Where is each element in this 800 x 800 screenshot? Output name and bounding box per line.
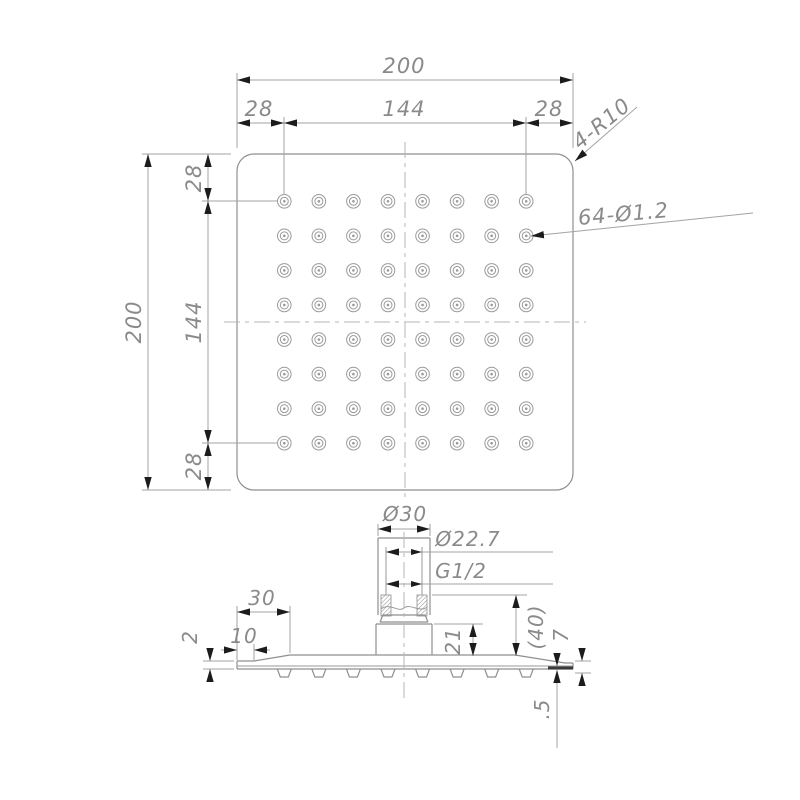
nozzle-hole-center xyxy=(456,338,459,341)
nozzle-hole-center xyxy=(318,200,321,203)
plate-top-surface xyxy=(237,655,573,663)
nozzle-hole-center xyxy=(490,442,493,445)
nozzle-hole-center xyxy=(352,442,355,445)
nozzle-hole-center xyxy=(525,269,528,272)
nozzle-hole-center xyxy=(490,407,493,410)
nozzle xyxy=(312,669,326,677)
nozzle-hole-center xyxy=(283,269,286,272)
nozzle-hole-center xyxy=(283,442,286,445)
nozzle-hole-center xyxy=(421,373,424,376)
nozzle-hole-center xyxy=(525,407,528,410)
plate-profile xyxy=(237,655,573,677)
pipe-od-label: Ø30 xyxy=(382,502,427,526)
holes-label: 64-Ø1.2 xyxy=(577,198,670,230)
nozzle-hole-center xyxy=(525,373,528,376)
v-seg-mid-label: 144 xyxy=(182,300,206,343)
nozzle-hole-center xyxy=(421,235,424,238)
top-view-extension-lines xyxy=(142,73,573,490)
h-seg-mid-label: 144 xyxy=(382,97,425,121)
dimension-thread-diameter: Ø22.7 xyxy=(386,527,553,555)
nozzle-hole-center xyxy=(387,373,390,376)
nozzle-hole-center xyxy=(456,407,459,410)
nozzle-hole-center xyxy=(490,200,493,203)
nozzle-hole-center xyxy=(421,200,424,203)
nozzle-hole-center xyxy=(318,407,321,410)
nozzle-hole-center xyxy=(352,338,355,341)
overall-width-label: 200 xyxy=(382,54,425,78)
nozzle-hole-center xyxy=(490,304,493,307)
top-view: 200 28 144 28 200 28 144 28 4-R10 xyxy=(122,54,753,502)
nozzle-hole-center xyxy=(352,304,355,307)
thread-hatch-right xyxy=(417,595,427,616)
nozzle-hole-center xyxy=(283,373,286,376)
nozzle-hole-center xyxy=(387,338,390,341)
dimension-pipe-length: (40) xyxy=(516,595,548,656)
nozzle-hole-center xyxy=(387,442,390,445)
nozzle-hole-center xyxy=(421,407,424,410)
nozzle-hole-center xyxy=(387,235,390,238)
thread-diameter-label: Ø22.7 xyxy=(434,527,500,551)
nozzle-hole-center xyxy=(525,235,528,238)
nozzle-hole-center xyxy=(421,442,424,445)
shower-head-technical-drawing: 200 28 144 28 200 28 144 28 4-R10 xyxy=(0,0,800,800)
nozzle-hole-center xyxy=(456,235,459,238)
nozzle xyxy=(450,669,464,677)
dimension-overall-width: 200 xyxy=(237,54,573,80)
thread-hatch-left xyxy=(381,595,391,616)
nozzle-hole-center xyxy=(525,304,528,307)
block-height-label: 21 xyxy=(441,627,465,654)
nozzle-hole-center xyxy=(352,407,355,410)
nozzle-hole-center xyxy=(421,269,424,272)
edge-flat-label: 10 xyxy=(230,624,257,648)
nozzle-hole-center xyxy=(352,269,355,272)
callout-corner-radius: 4-R10 xyxy=(568,93,637,161)
nozzle-hole-center xyxy=(318,373,321,376)
v-seg-bottom-label: 28 xyxy=(182,452,206,481)
nozzle-hole-center xyxy=(283,235,286,238)
edge-thickness-label: 2 xyxy=(178,630,202,644)
v-seg-top-label: 28 xyxy=(182,164,206,193)
nozzle-hole-center xyxy=(490,269,493,272)
nozzle-hole-center xyxy=(352,373,355,376)
nozzle-hole-center xyxy=(456,304,459,307)
dimension-edge-thickness: 2 xyxy=(178,630,210,680)
nozzle-hole-center xyxy=(318,442,321,445)
nozzle-hole-center xyxy=(283,407,286,410)
nozzle-hole-center xyxy=(421,338,424,341)
h-seg-left-label: 28 xyxy=(245,97,274,121)
dimension-hole-margins-vertical: 28 144 28 xyxy=(182,154,208,490)
nozzle-hole-center xyxy=(525,338,528,341)
nozzle-hole-center xyxy=(387,200,390,203)
corner-radius-label: 4-R10 xyxy=(568,93,635,154)
dimension-edge-flat: 10 xyxy=(221,624,270,650)
nozzle-hole-center xyxy=(490,373,493,376)
nozzle xyxy=(346,669,360,677)
nozzle-hole-center xyxy=(352,235,355,238)
overall-height-label: 200 xyxy=(122,300,146,343)
nozzle-hole-center xyxy=(490,235,493,238)
rim-height-label: 7 xyxy=(549,628,573,642)
nozzle xyxy=(381,669,395,677)
dimension-thread-spec: G1/2 xyxy=(386,559,553,587)
dimension-hole-margins-horizontal: 28 144 28 xyxy=(237,97,573,123)
nozzle-hole-center xyxy=(456,269,459,272)
side-view: Ø30 Ø22.7 G1/2 30 10 2 xyxy=(178,502,591,748)
nozzle-hole-center xyxy=(352,200,355,203)
callout-holes: 64-Ø1.2 xyxy=(531,198,753,236)
nozzle-hole-center xyxy=(387,269,390,272)
nozzle-hole-center xyxy=(525,200,528,203)
lip-label: .5 xyxy=(530,698,554,719)
h-seg-right-label: 28 xyxy=(535,97,564,121)
nozzle-hole-center xyxy=(421,304,424,307)
pipe-length-label: (40) xyxy=(524,604,548,649)
nozzle-hole-center xyxy=(283,338,286,341)
dimension-block-height: 21 xyxy=(441,624,473,656)
nozzle-hole-center xyxy=(525,442,528,445)
taper-width-label: 30 xyxy=(248,586,275,610)
nozzle-hole-center xyxy=(318,235,321,238)
dimension-taper-width: 30 xyxy=(237,586,290,612)
nozzle-hole-center xyxy=(456,200,459,203)
drawing-canvas: 200 28 144 28 200 28 144 28 4-R10 xyxy=(0,0,800,800)
nozzle-hole-center xyxy=(387,407,390,410)
plate-edges xyxy=(237,661,573,669)
nozzle-hole-center xyxy=(490,338,493,341)
thread-spec-label: G1/2 xyxy=(435,559,487,583)
nozzle xyxy=(519,669,533,677)
nozzle-hole-center xyxy=(318,269,321,272)
nozzle xyxy=(277,669,291,677)
dimension-rim-height: 7 xyxy=(549,628,582,684)
connector-pipe xyxy=(378,538,430,622)
nozzle-hole-center xyxy=(456,442,459,445)
dimension-pipe-od: Ø30 xyxy=(378,502,430,529)
nozzle xyxy=(485,669,499,677)
nozzle-hole-center xyxy=(387,304,390,307)
nozzle-hole-center xyxy=(318,338,321,341)
nozzle xyxy=(416,669,430,677)
nozzle-hole-center xyxy=(456,373,459,376)
nozzle-hole-center xyxy=(283,200,286,203)
nozzle-hole-center xyxy=(318,304,321,307)
nozzle-row xyxy=(277,669,533,677)
dimension-overall-height: 200 xyxy=(122,154,148,490)
nozzle-hole-center xyxy=(283,304,286,307)
